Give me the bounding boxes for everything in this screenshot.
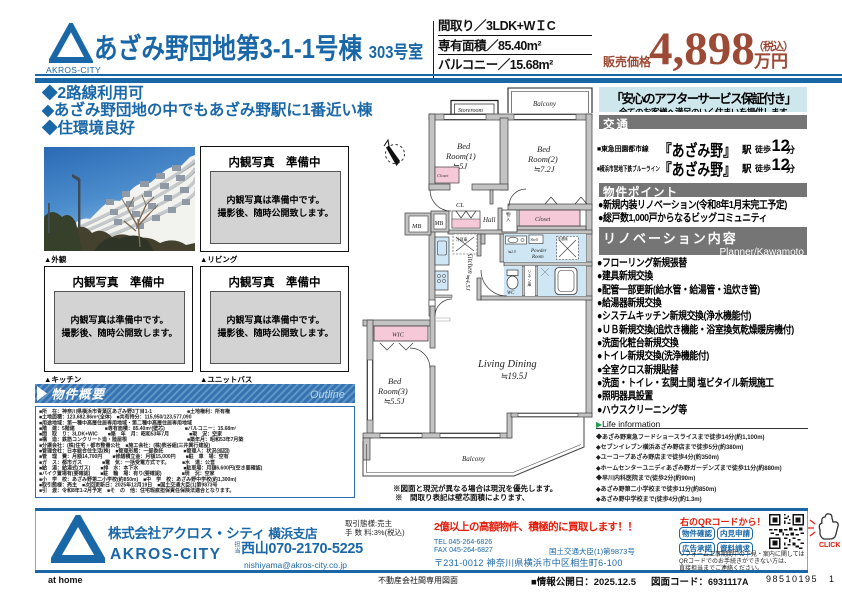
svg-text:WIC: WIC bbox=[392, 332, 405, 339]
svg-text:CLICK: CLICK bbox=[819, 542, 840, 548]
svg-text:Outline: Outline bbox=[310, 389, 345, 401]
svg-text:Storeroom: Storeroom bbox=[458, 108, 484, 114]
svg-text:Room(3): Room(3) bbox=[377, 386, 408, 396]
svg-text:Shelf: Shelf bbox=[531, 238, 539, 242]
svg-text:Powder: Powder bbox=[530, 249, 547, 254]
svg-text:Closet: Closet bbox=[437, 173, 449, 178]
svg-text:冷蔵庫: 冷蔵庫 bbox=[456, 237, 468, 242]
svg-text:物入: 物入 bbox=[506, 211, 511, 222]
svg-text:Kitchen: Kitchen bbox=[466, 251, 474, 274]
svg-text:Bed: Bed bbox=[388, 376, 402, 386]
svg-text:Bed: Bed bbox=[457, 141, 471, 151]
svg-text:Hall: Hall bbox=[482, 216, 496, 224]
svg-text:Room(1): Room(1) bbox=[445, 151, 476, 161]
svg-text:≒4.5J: ≒4.5J bbox=[464, 274, 471, 292]
svg-text:リネン庫: リネン庫 bbox=[528, 270, 532, 287]
svg-text:≒7.2J: ≒7.2J bbox=[533, 164, 556, 174]
svg-text:≒19.5J: ≒19.5J bbox=[500, 371, 528, 381]
svg-text:Room: Room bbox=[531, 255, 544, 260]
svg-text:≒2.0: ≒2.0 bbox=[508, 250, 516, 254]
svg-text:≒5.5J: ≒5.5J bbox=[383, 396, 406, 406]
svg-text:CL: CL bbox=[456, 202, 464, 209]
svg-text:物件概要: 物件概要 bbox=[51, 388, 107, 402]
svg-text:Closet: Closet bbox=[535, 217, 551, 223]
svg-text:WC: WC bbox=[507, 291, 515, 296]
svg-text:Balcony: Balcony bbox=[462, 455, 486, 463]
svg-text:※図面と現況が異なる場合は現況を優先します。: ※図面と現況が異なる場合は現況を優先します。 bbox=[393, 483, 557, 493]
svg-text:MB: MB bbox=[434, 221, 444, 227]
svg-text:Balcony: Balcony bbox=[533, 100, 557, 108]
svg-text:Room(2): Room(2) bbox=[527, 154, 558, 164]
svg-text:MB: MB bbox=[411, 223, 421, 230]
svg-text:※ 間取り表記は壁芯面積によります、: ※ 間取り表記は壁芯面積によります、 bbox=[395, 492, 529, 502]
svg-text:洗濯機: 洗濯機 bbox=[558, 236, 569, 241]
svg-text:Bed: Bed bbox=[537, 144, 551, 154]
svg-text:Living Dining: Living Dining bbox=[477, 359, 537, 370]
